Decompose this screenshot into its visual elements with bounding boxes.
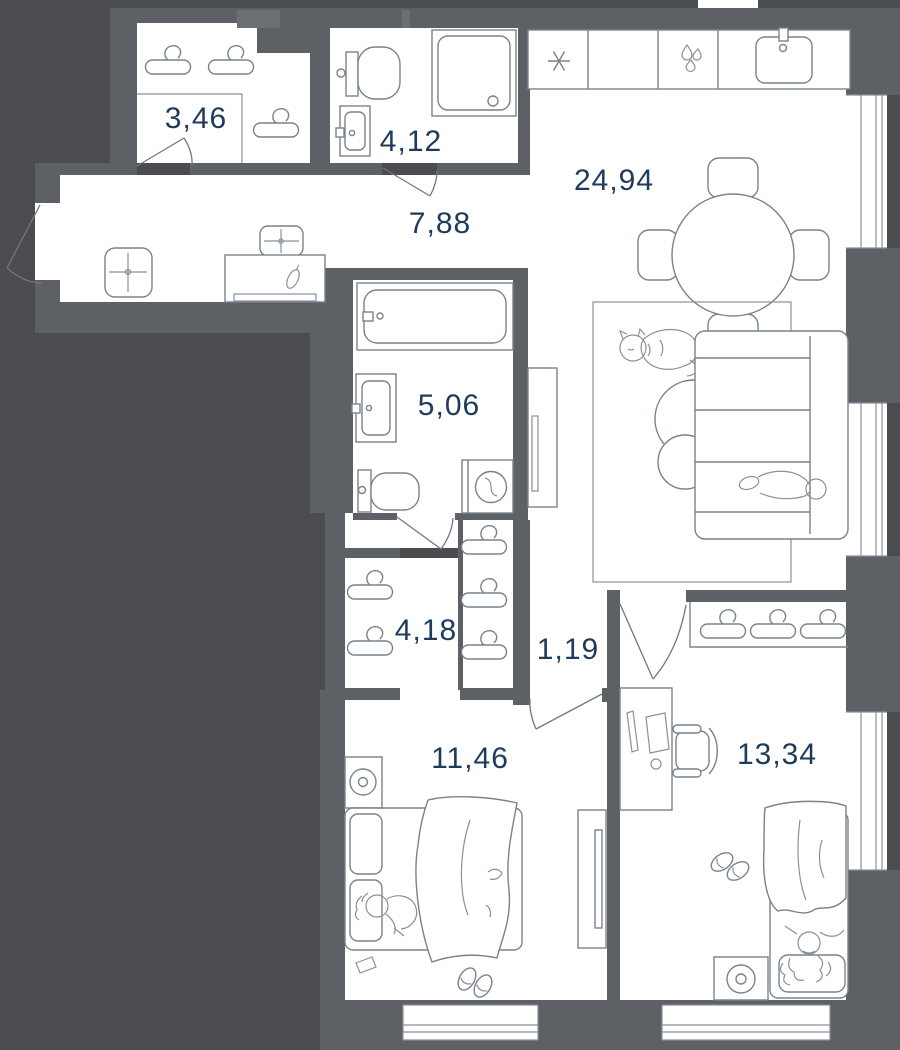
sofa-icon [695,331,848,539]
floor-plan: 3,46 4,12 7,88 24,94 5,06 4,18 1,19 11,4… [0,0,900,1050]
blanket [416,797,517,962]
room-label-bathroom-small: 4,12 [380,125,442,158]
tall-cabinet [528,368,557,507]
kitchen-contents [528,28,850,89]
room-label-wardrobe: 4,18 [395,614,457,647]
entry-door-opening [35,203,60,280]
vent-shaft [237,10,280,28]
pillow-icon [350,880,382,941]
chair-icon [708,158,758,198]
room-label-hallway: 7,88 [409,207,471,240]
toilet-icon [358,470,419,512]
pouf-icon [105,248,152,297]
floor-plan-canvas: 3,46 4,12 7,88 24,94 5,06 4,18 1,19 11,4… [0,0,900,1050]
toilet-icon [337,47,400,99]
nightstand-lamp-icon [714,957,768,1000]
nightstand-lamp-icon [345,757,382,808]
window-living [846,403,887,556]
washbasin-icon [336,106,370,156]
dining-table-icon [672,194,794,316]
room-label-bathroom-main: 5,06 [418,389,480,422]
window-bedroom-1 [403,1005,538,1040]
room-label-kitchen-living: 24,94 [574,164,654,197]
stool-icon [260,226,303,256]
desk-icon [620,688,672,810]
bathtub-icon [357,283,513,350]
vent-shaft [402,10,410,28]
room-label-bedroom-1: 11,46 [431,742,509,775]
shower-icon [432,30,516,116]
room-label-bedroom-2: 13,34 [737,738,817,771]
tv-icon [578,810,606,948]
room-label-corridor: 1,19 [537,633,599,666]
pillow-icon [350,814,382,874]
window-bedroom-2-side [846,712,887,870]
washing-machine-icon [462,460,513,513]
washbasin-icon [352,374,396,442]
bed-icon [345,797,522,962]
console-table-icon [225,255,325,302]
window-kitchen [846,95,887,248]
chair-icon [789,230,829,280]
room-label-hall-wardrobe: 3,46 [165,102,227,135]
window-bedroom-2 [662,1005,830,1040]
